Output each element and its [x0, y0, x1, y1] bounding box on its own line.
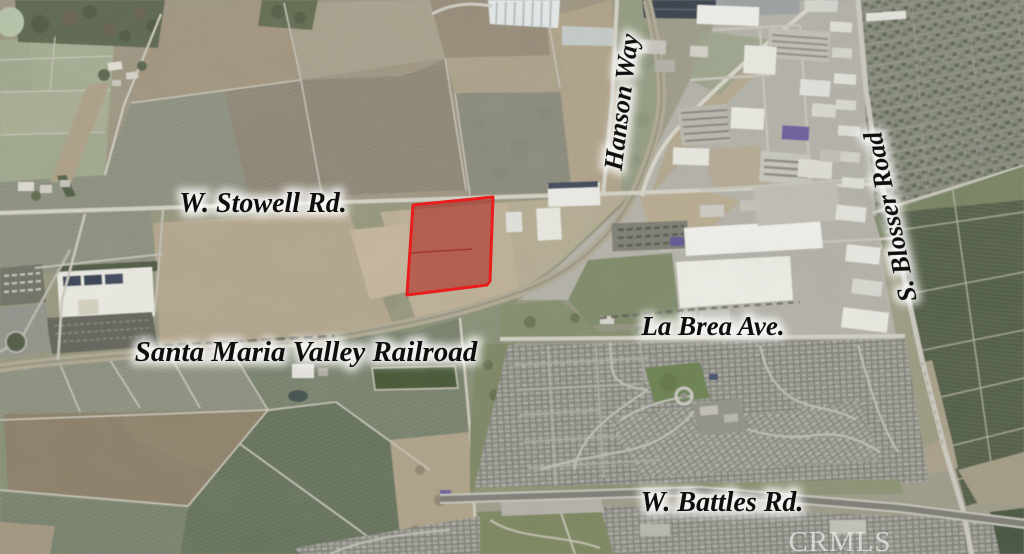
- svg-text:CRMLS: CRMLS: [788, 526, 891, 554]
- svg-text:La Brea Ave.: La Brea Ave.: [640, 311, 784, 341]
- svg-text:W. Battles Rd.: W. Battles Rd.: [641, 487, 804, 518]
- svg-text:W. Stowell Rd.: W. Stowell Rd.: [179, 188, 347, 219]
- svg-text:Santa Maria Valley Railroad: Santa Maria Valley Railroad: [135, 336, 478, 368]
